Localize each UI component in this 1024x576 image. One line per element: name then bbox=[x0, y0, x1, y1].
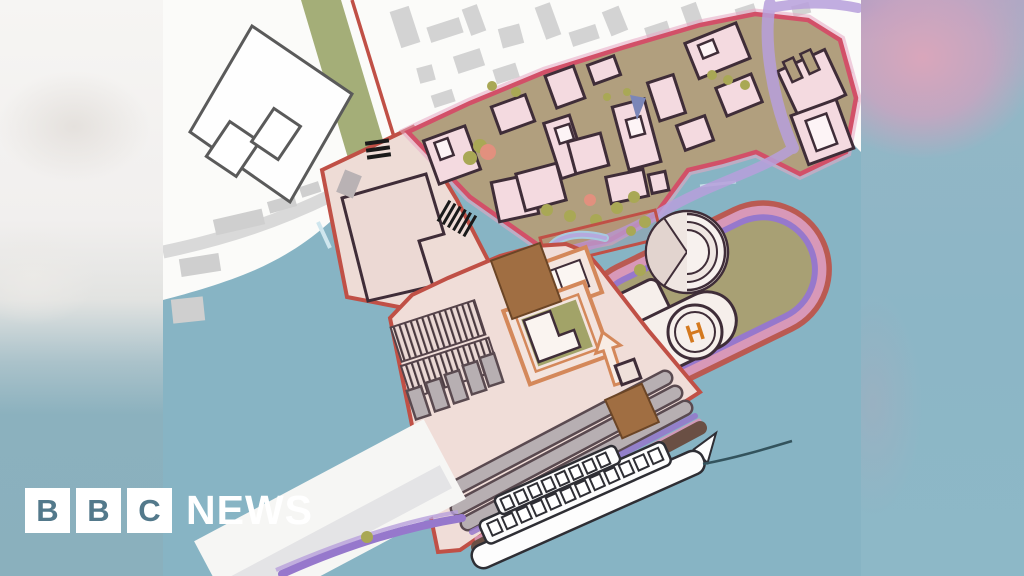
bbc-block-1: B bbox=[25, 488, 70, 533]
bbc-block-3: C bbox=[127, 488, 172, 533]
news-wordmark: NEWS bbox=[186, 487, 313, 534]
stair-hatch-north bbox=[365, 138, 391, 159]
bbc-letter: B bbox=[87, 493, 109, 529]
bbc-letter: C bbox=[138, 493, 160, 529]
small-kiosk bbox=[615, 359, 641, 385]
news-image-frame: H bbox=[0, 0, 1024, 576]
bbc-letter: B bbox=[36, 493, 58, 529]
promenade-tree bbox=[361, 531, 373, 543]
helipad-icon: H bbox=[668, 305, 722, 359]
bbc-news-logo: B B C NEWS bbox=[25, 487, 313, 534]
dome-building bbox=[646, 211, 728, 293]
bbc-block-2: B bbox=[76, 488, 121, 533]
